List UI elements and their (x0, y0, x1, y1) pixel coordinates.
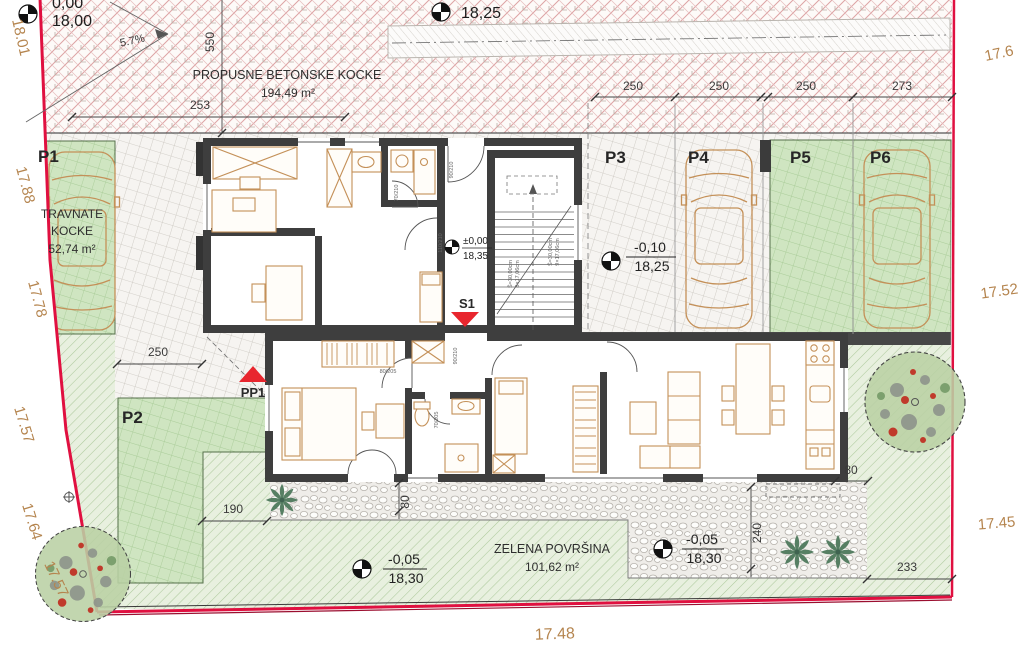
area-zelena-name: ZELENA POVRŠINA (494, 541, 611, 556)
bedroom-chair (362, 412, 374, 430)
elev-garden-w-rel: -0,05 (388, 551, 420, 567)
label-p4: P4 (688, 148, 709, 167)
dim-273-p6: 273 (892, 79, 912, 93)
palm-plant (821, 535, 855, 569)
door-label-2: 70/210 (394, 185, 400, 202)
palm-plant (780, 535, 814, 569)
dim-80-corner: 80 (844, 463, 858, 477)
dim-250-p3: 250 (623, 79, 643, 93)
site-plan-drawing: 253 550 250 250 250 273 250 190 80 240 8… (0, 0, 1024, 648)
stair-tread-a: Š=30,00cm (507, 260, 514, 288)
elev-entrance-rel: ±0,00 (463, 236, 488, 247)
hall-wardrobe-crossed (412, 341, 444, 363)
chair (240, 177, 260, 189)
double-bed (282, 388, 356, 460)
elevation-marker-icon (602, 252, 620, 270)
washing-machine (391, 150, 413, 172)
gate-post (760, 140, 771, 172)
dim-250-p2: 250 (148, 345, 168, 359)
dim-250-p5: 250 (796, 79, 816, 93)
door-label-6: 70/205 (434, 412, 440, 429)
elev-entrance-abs: 18,35 (463, 251, 488, 262)
elev-garden-e-rel: -0,05 (686, 531, 718, 547)
palm-plant (266, 484, 298, 516)
elev-p3-rel: -0,10 (634, 239, 666, 255)
elev-p3-abs: 18,25 (634, 258, 669, 274)
wardrobe-rails (322, 341, 394, 367)
chair-2 (252, 284, 265, 302)
area-propusne-name: PROPUSNE BETONSKE KOCKE (193, 68, 382, 82)
boundary-south: 17.48 (535, 625, 576, 643)
point-s1-label: S1 (459, 296, 475, 311)
area-zelena-size: 101,62 m² (525, 560, 579, 574)
area-travnate-2: KOCKE (51, 224, 93, 238)
elev-18-25-ramp: 18,25 (461, 5, 501, 22)
label-p6: P6 (870, 148, 891, 167)
label-p2: P2 (122, 408, 143, 427)
door-label-5: 90/210 (453, 348, 459, 365)
kitchen (806, 341, 834, 469)
boundary-east-3: 17.45 (977, 513, 1016, 533)
box-crossed (493, 455, 515, 473)
dim-80-terrace: 80 (398, 495, 412, 509)
label-p1: P1 (38, 147, 59, 166)
tall-wardrobe-crossed (327, 149, 352, 207)
coffee-table (630, 402, 656, 434)
area-propusne-size: 194,49 m² (261, 86, 315, 100)
elevation-marker-icon (654, 540, 672, 558)
bed-small (420, 272, 442, 322)
bathroom-sink (352, 152, 381, 172)
dim-250-p4: 250 (709, 79, 729, 93)
dim-253: 253 (190, 98, 210, 112)
dim-550: 550 (203, 32, 217, 52)
parking-p6-area (853, 140, 951, 334)
wardrobe-crossed (213, 147, 297, 179)
desk-item (233, 198, 255, 211)
wardrobe-rails-2 (573, 386, 598, 472)
door-label-1: 90/210 (449, 162, 455, 179)
shower (414, 150, 435, 194)
label-p5: P5 (790, 148, 811, 167)
dim-233: 233 (897, 560, 917, 574)
stair-tread-b: Š=30,00cm (547, 238, 554, 266)
door-label-3: 110/210 (438, 233, 444, 252)
point-pp1-label: PP1 (241, 385, 266, 400)
dim-240: 240 (750, 523, 764, 543)
stair-riser-b: 9×17,06cm (555, 238, 561, 266)
label-p3: P3 (605, 148, 626, 167)
bedroom-desk (376, 404, 404, 438)
elev-18-00: 18,00 (52, 13, 92, 30)
elevation-marker-icon (445, 240, 459, 254)
desk-2 (266, 266, 302, 320)
area-travnate-size: 52,74 m² (48, 242, 95, 256)
elev-garden-e-abs: 18,30 (686, 550, 721, 566)
elevation-marker-icon (432, 3, 450, 21)
elev-partial: 0,00 (52, 0, 83, 12)
tree (865, 352, 965, 452)
bed-2 (495, 378, 527, 454)
site-plan-canvas: 253 550 250 250 250 273 250 190 80 240 8… (0, 0, 1024, 648)
parking-p5-area (770, 140, 853, 334)
door-label-4: 80/205 (380, 369, 397, 375)
elevation-marker-icon (353, 560, 371, 578)
stair-riser-a: 8×17,06cm (515, 260, 521, 288)
area-travnate-1: TRAVNATE (41, 207, 103, 221)
elev-garden-w-abs: 18,30 (388, 570, 423, 586)
dim-190: 190 (223, 502, 243, 516)
